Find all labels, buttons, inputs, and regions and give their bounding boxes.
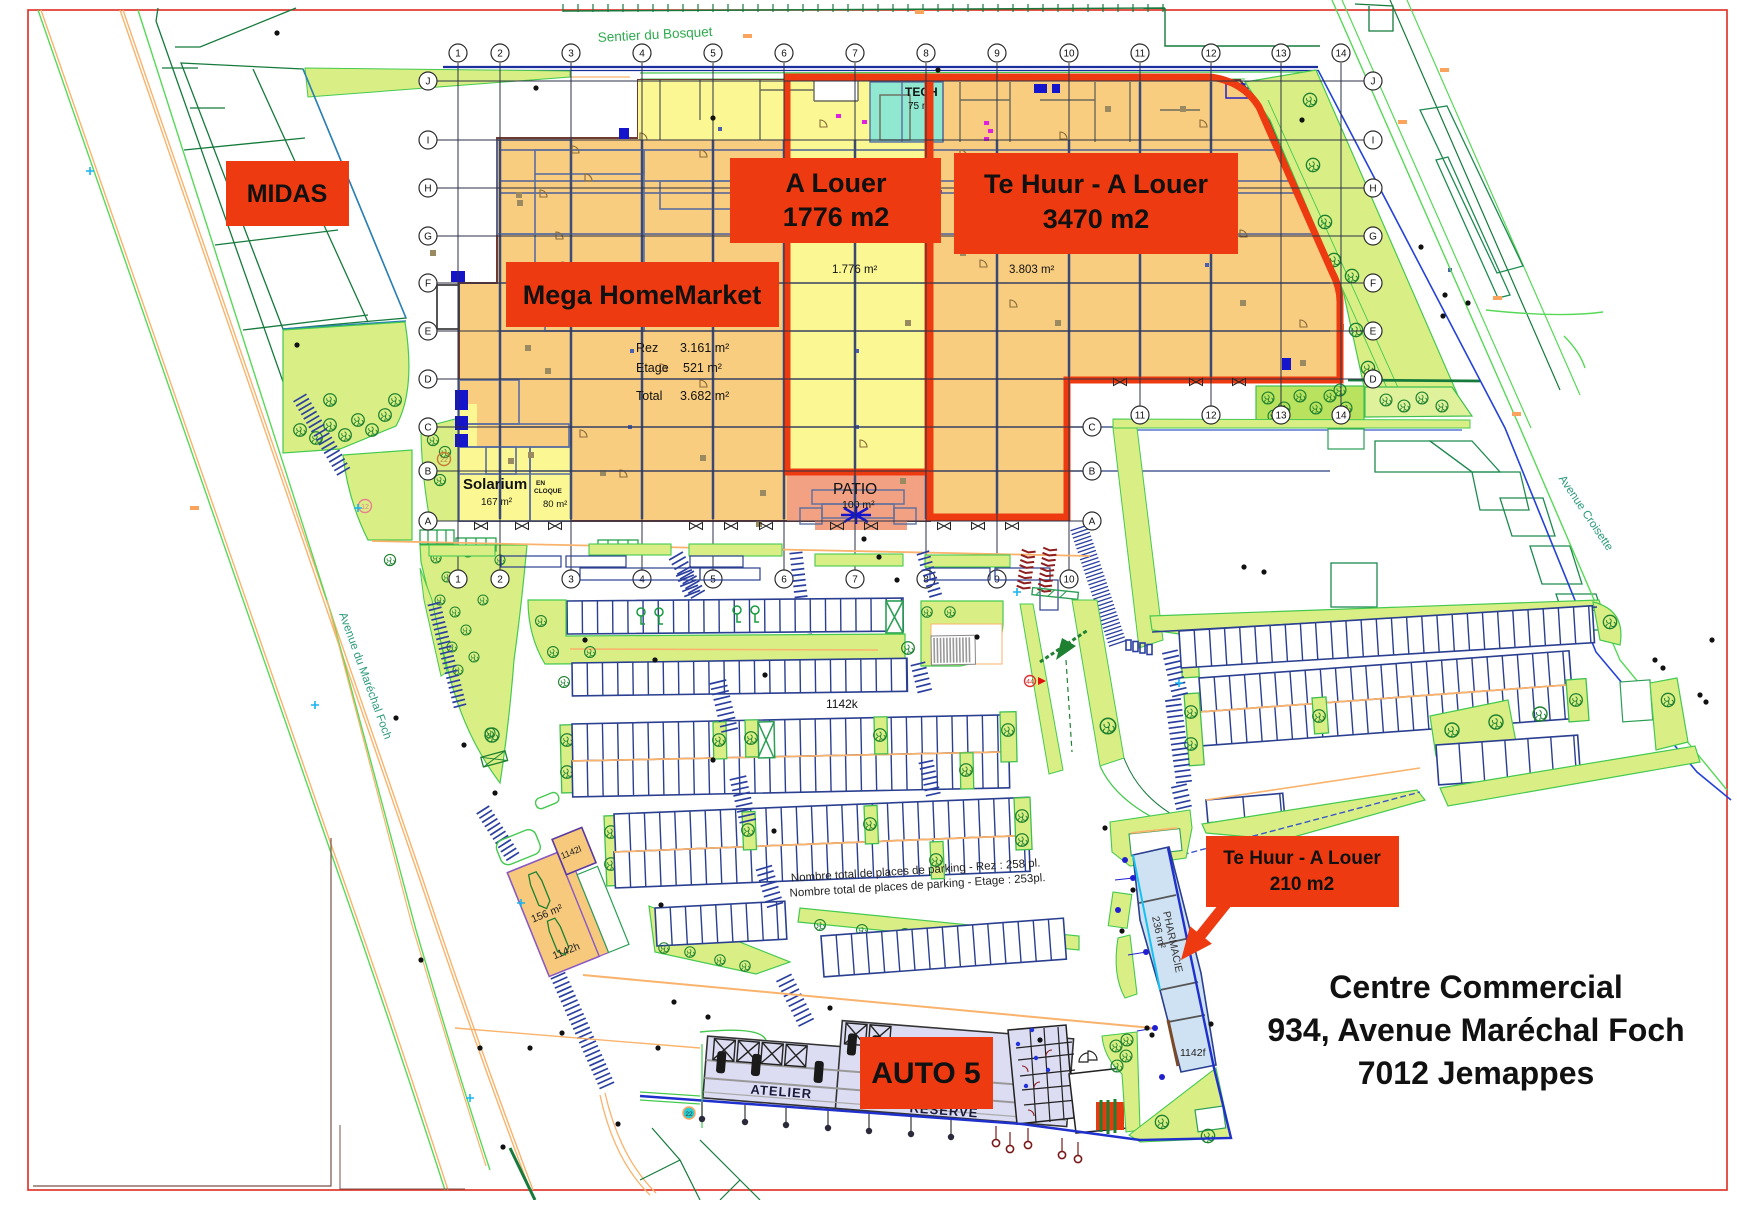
svg-text:3: 3 [568, 575, 574, 586]
svg-text:4: 4 [639, 49, 645, 60]
svg-text:J: J [426, 77, 431, 88]
svg-text:F: F [1370, 279, 1376, 290]
svg-text:7: 7 [852, 49, 858, 60]
svg-text:CLOQUE: CLOQUE [534, 488, 562, 495]
svg-text:F: F [425, 279, 431, 290]
svg-text:1: 1 [455, 49, 461, 60]
svg-text:C: C [1088, 423, 1095, 434]
svg-text:9: 9 [994, 49, 1000, 60]
svg-text:1776 m2: 1776 m2 [783, 202, 890, 232]
svg-text:7012 Jemappes: 7012 Jemappes [1358, 1055, 1595, 1091]
svg-text:J: J [1371, 77, 1376, 88]
svg-text:EN: EN [536, 480, 545, 487]
svg-text:Centre Commercial: Centre Commercial [1329, 969, 1622, 1005]
svg-text:10: 10 [1063, 575, 1075, 586]
svg-text:80 m²: 80 m² [543, 499, 567, 510]
svg-text:H: H [1369, 184, 1376, 195]
svg-text:Solarium: Solarium [463, 476, 527, 493]
svg-text:E: E [425, 327, 432, 338]
svg-text:D: D [424, 375, 431, 386]
svg-text:I: I [427, 136, 430, 147]
svg-text:Etage: Etage [636, 361, 669, 375]
svg-text:934, Avenue Maréchal Foch: 934, Avenue Maréchal Foch [1267, 1012, 1684, 1048]
svg-text:Mega HomeMarket: Mega HomeMarket [523, 280, 762, 310]
svg-text:1: 1 [455, 575, 461, 586]
svg-text:AUTO 5: AUTO 5 [871, 1057, 980, 1090]
svg-text:A: A [425, 517, 432, 528]
svg-text:B: B [425, 467, 432, 478]
svg-text:3470 m2: 3470 m2 [1043, 204, 1150, 234]
svg-text:3.682 m²: 3.682 m² [680, 389, 729, 403]
svg-text:3.161 m²: 3.161 m² [680, 341, 729, 355]
svg-text:3.803 m²: 3.803 m² [1009, 264, 1055, 276]
svg-text:6: 6 [781, 575, 787, 586]
svg-text:167 m²: 167 m² [481, 497, 513, 508]
svg-text:E: E [1370, 327, 1377, 338]
svg-text:G: G [1369, 232, 1377, 243]
svg-text:11: 11 [1135, 411, 1146, 422]
svg-text:A Louer: A Louer [786, 168, 887, 198]
svg-text:2: 2 [497, 49, 503, 60]
svg-text:A: A [1089, 517, 1096, 528]
svg-text:14: 14 [1335, 411, 1347, 422]
svg-text:521 m²: 521 m² [683, 361, 722, 375]
svg-text:11: 11 [1135, 49, 1146, 60]
svg-text:1142k: 1142k [826, 697, 859, 711]
svg-text:D: D [1369, 375, 1376, 386]
svg-text:44: 44 [1026, 679, 1034, 686]
svg-text:B: B [1089, 467, 1096, 478]
svg-text:22: 22 [440, 457, 448, 464]
svg-text:12: 12 [361, 504, 369, 511]
svg-text:2: 2 [497, 575, 503, 586]
svg-text:I: I [1372, 136, 1375, 147]
svg-text:G: G [424, 232, 432, 243]
svg-text:12: 12 [1205, 49, 1217, 60]
svg-text:13: 13 [1275, 411, 1287, 422]
svg-text:13: 13 [1275, 49, 1287, 60]
svg-text:22: 22 [685, 1111, 693, 1118]
svg-text:Te Huur - A Louer: Te Huur - A Louer [1223, 848, 1381, 869]
svg-text:12: 12 [1205, 411, 1217, 422]
svg-text:100 m²: 100 m² [842, 499, 875, 511]
svg-text:7: 7 [852, 575, 858, 586]
svg-text:MIDAS: MIDAS [247, 180, 328, 208]
svg-text:3: 3 [568, 49, 574, 60]
svg-text:1142f: 1142f [1180, 1047, 1206, 1059]
svg-text:8: 8 [923, 49, 929, 60]
svg-text:6: 6 [781, 49, 787, 60]
svg-text:Rez: Rez [636, 341, 658, 355]
svg-text:H: H [424, 184, 431, 195]
svg-text:10: 10 [1063, 49, 1075, 60]
svg-text:210 m2: 210 m2 [1270, 874, 1334, 895]
svg-text:5: 5 [710, 49, 716, 60]
svg-text:Te Huur - A Louer: Te Huur - A Louer [984, 169, 1208, 199]
svg-text:C: C [424, 423, 431, 434]
svg-text:Total: Total [636, 389, 662, 403]
svg-text:14: 14 [1335, 49, 1347, 60]
